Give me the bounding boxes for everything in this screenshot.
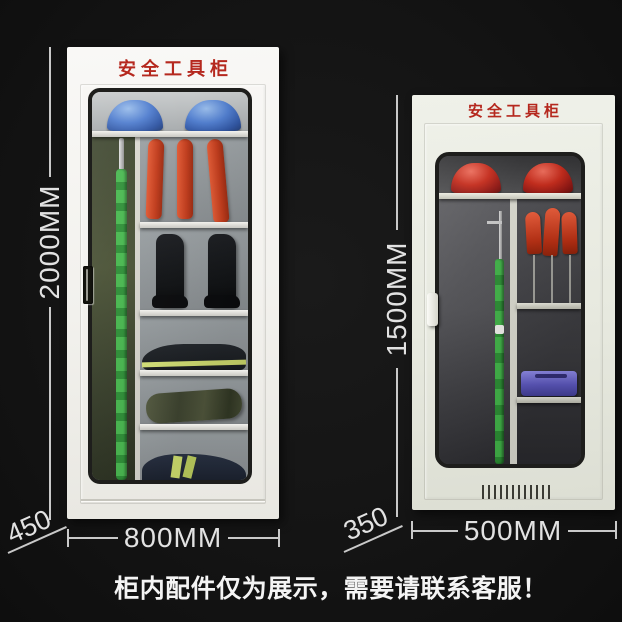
left-height-label: 2000MM [34,185,66,300]
left-cabinet-title: 安全工具柜 [67,55,279,81]
tool-duffel-bag [145,388,243,425]
right-cabinet-door-handle [427,293,438,326]
width-dimension-line [68,537,118,539]
insulated-glove [206,138,229,223]
shelf [140,310,248,316]
shelf [517,303,581,309]
right-width-label: 500MM [464,515,562,547]
left-depth-label: 450 [2,504,56,551]
helmet-shelf-compartment [92,92,248,131]
insulated-glove [146,139,165,220]
insulated-glove [561,212,577,254]
insulated-operating-rod [495,259,504,464]
insulating-boot [156,234,184,308]
red-helmet [451,163,501,193]
shelf [140,222,248,228]
width-dimension-line [568,530,616,532]
door-groove [81,499,265,501]
right-cabinet-lower-interior [439,199,581,464]
right-cabinet-title: 安全工具柜 [412,100,615,121]
shelf [92,131,248,137]
tool-box [521,371,577,396]
rod-compartment [439,199,510,464]
rod-compartment [92,137,135,480]
bag-compartment [140,376,248,424]
right-cabinet-glass-window [435,152,585,468]
shelf [140,370,248,376]
shelf-column [140,137,248,480]
helmet-shelf-compartment [439,156,581,193]
height-dimension-line [49,307,51,520]
rod-band [495,325,504,334]
left-cabinet: 安全工具柜 [67,47,279,519]
glove-stand [551,255,553,305]
red-helmet [523,163,573,193]
reflective-stripe [182,455,196,479]
glove-stand [569,255,571,305]
width-dimension-line [412,530,458,532]
left-cabinet-glass-window [88,88,252,484]
rod-metal-tip [499,211,502,261]
glove-compartment [140,137,248,222]
left-cabinet-door-handle [83,266,93,304]
insulated-glove [177,139,193,219]
insulated-operating-rod [114,138,129,480]
folded-workwear [142,454,246,480]
rod-crossbar [487,221,502,224]
glove-stand [533,255,535,305]
blue-helmet [185,100,241,131]
folded-workwear [142,344,246,370]
right-cabinet: 安全工具柜 [412,95,615,510]
ventilation-grille [482,485,552,499]
insulated-glove [542,208,560,257]
vertical-divider [510,199,517,464]
insulated-glove [525,212,542,255]
height-dimension-line [49,47,51,177]
caption-text: 柜内配件仅为展示，需要请联系客服！ [114,569,548,605]
boot-compartment [140,228,248,310]
left-width-label: 800MM [124,522,222,554]
height-dimension-line [396,95,398,230]
shelf [140,424,248,430]
insulating-boot [208,234,236,308]
shelf [439,193,581,199]
shelf [517,397,581,403]
reflective-stripe [142,360,246,368]
product-photo: 安全工具柜 [0,0,622,622]
reflective-stripe [171,455,183,478]
clothing-compartment [140,430,248,480]
left-cabinet-lower-interior [92,137,248,480]
clothing-compartment [140,316,248,370]
glove-compartment [517,199,581,464]
width-dimension-line [228,537,279,539]
height-dimension-line [396,368,398,517]
blue-helmet [107,100,163,131]
right-height-label: 1500MM [381,242,413,357]
right-depth-label: 350 [339,501,393,548]
rod-green-body [116,169,127,480]
rod-metal-tip [119,138,124,170]
